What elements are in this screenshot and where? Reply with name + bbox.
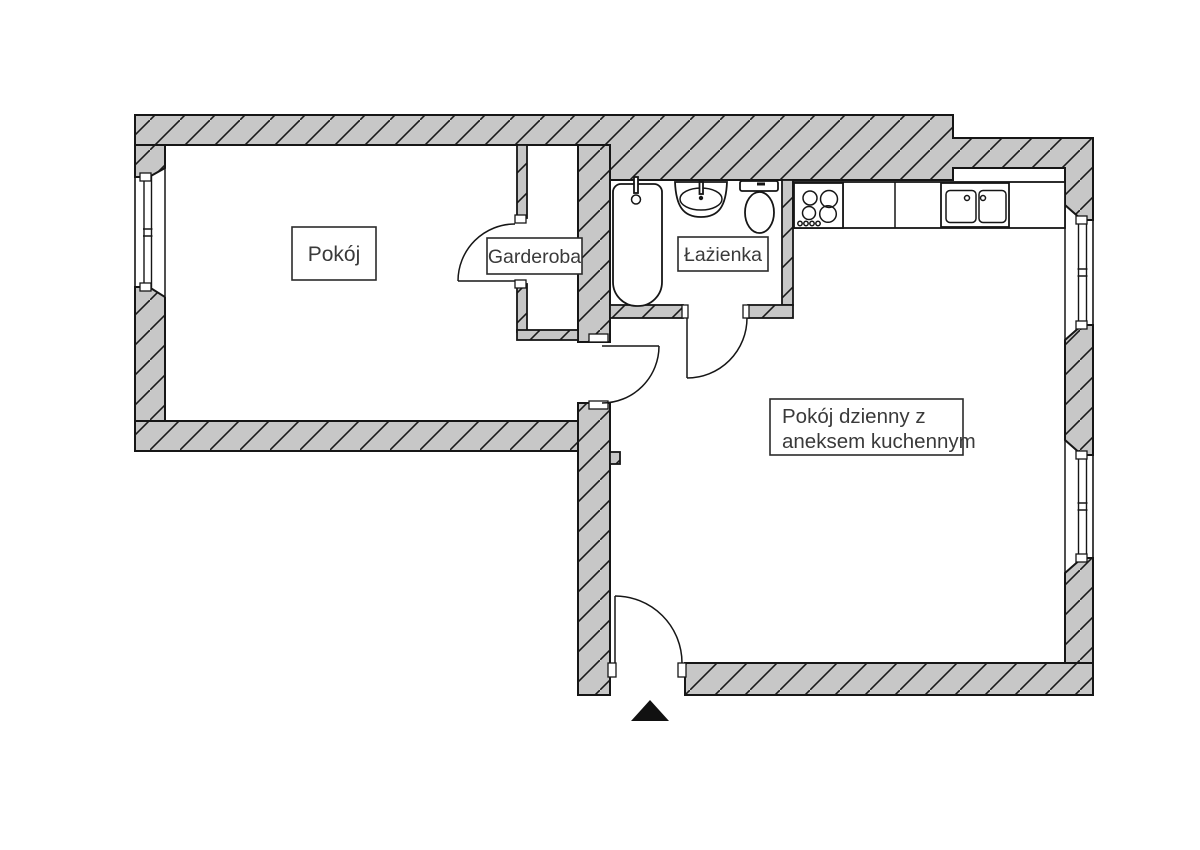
entrance-arrow-icon — [631, 700, 669, 721]
west-window-jamb — [140, 283, 151, 291]
east-window-upper-glazing — [1079, 220, 1087, 325]
entrance-door-jamb — [608, 663, 616, 677]
garderoba-door-jamb — [515, 280, 526, 288]
east-window-lower-glazing — [1079, 455, 1087, 558]
entrance-door — [608, 596, 686, 677]
bathroom-door-swing-arc — [687, 318, 747, 378]
wall-south-living — [685, 663, 1093, 695]
toilet-bowl — [745, 192, 774, 233]
stove-hob — [794, 183, 843, 228]
garderoba-door-jamb — [515, 215, 526, 223]
wall-east-lower — [1065, 558, 1093, 663]
east-window-upper — [1065, 205, 1093, 340]
wall-garderoba-south — [517, 330, 578, 340]
room-label-pokoj: Pokój — [292, 227, 376, 280]
west-window-jamb — [140, 173, 151, 181]
east-window-lower — [1065, 440, 1093, 573]
toilet — [740, 181, 778, 233]
wall-divider-lower — [578, 403, 610, 695]
washbasin-faucet-icon — [700, 182, 704, 194]
wall-bathroom-south-west — [610, 305, 683, 318]
east-window-lower-jamb — [1076, 554, 1087, 562]
bathroom-door — [682, 305, 749, 378]
room-label-text-line1: Pokój dzienny z — [782, 405, 926, 428]
wall-garderoba-west-lower — [517, 284, 527, 332]
entrance-door-jamb — [678, 663, 686, 677]
room-label-garderoba: Garderoba — [487, 238, 582, 274]
entrance-door-swing-arc — [615, 596, 682, 663]
bathtub-outline — [613, 184, 662, 306]
wall-garderoba-west-upper — [517, 145, 527, 218]
wall-bathroom-east — [782, 180, 793, 305]
wall-south-pokoj — [135, 421, 578, 451]
room-label-text: Garderoba — [488, 246, 581, 268]
washbasin — [675, 182, 727, 217]
bathtub — [613, 177, 662, 306]
wall-pier-nib — [610, 452, 620, 464]
room-label-living: Pokój dzienny z aneksem kuchennym — [770, 399, 976, 455]
west-window — [135, 168, 165, 296]
west-window-glazing — [144, 177, 152, 287]
wall-west-below-window — [135, 287, 165, 421]
bathtub-faucet-icon — [634, 177, 638, 193]
bathroom-door-jamb — [682, 305, 688, 318]
pokoj-door-swing-arc — [602, 346, 659, 403]
bathroom-door-jamb — [743, 305, 749, 318]
east-window-lower-jamb — [1076, 451, 1087, 459]
wall-east-mid-pier — [1065, 325, 1093, 455]
room-label-lazienka: Łażienka — [678, 237, 768, 271]
floor-plan-svg: Pokój Garderoba Łażienka Pokój dzienny z… — [0, 0, 1200, 850]
wall-west-above-window — [135, 145, 165, 177]
east-window-upper-jamb — [1076, 216, 1087, 224]
pokoj-door — [589, 334, 659, 409]
room-label-text-line2: aneksem kuchennym — [782, 430, 976, 453]
double-sink — [941, 183, 1009, 227]
wall-bathroom-south-east — [748, 305, 793, 318]
toilet-flush-button — [757, 183, 765, 186]
room-label-text: Pokój — [308, 243, 361, 266]
washbasin-drain — [699, 196, 703, 200]
pokoj-door-jamb — [589, 334, 608, 342]
east-window-upper-jamb — [1076, 321, 1087, 329]
floor-plan-page: Pokój Garderoba Łażienka Pokój dzienny z… — [0, 0, 1200, 850]
room-label-text: Łażienka — [684, 244, 762, 266]
